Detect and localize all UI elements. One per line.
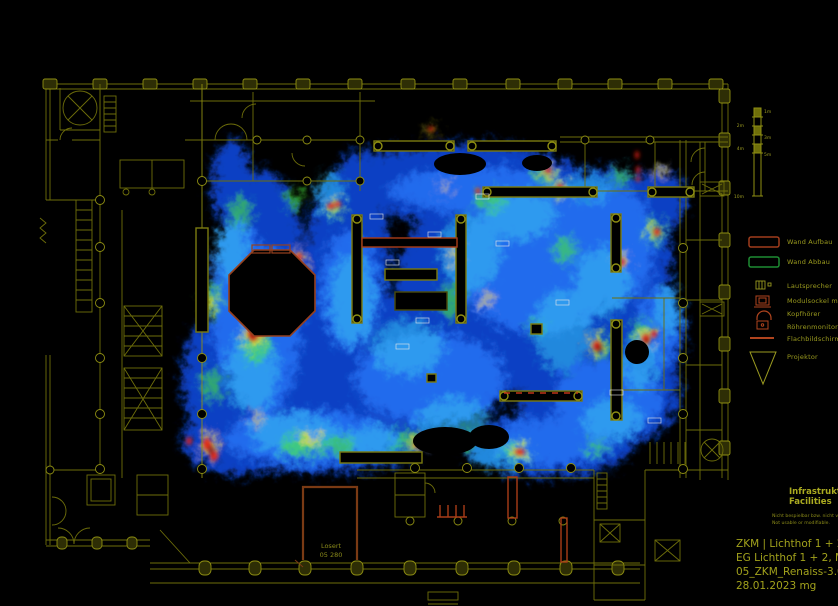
plan-filename: 05_ZKM_Renaiss-3.0_E01 [736, 565, 838, 579]
room-label-line1: Losert [321, 542, 342, 550]
svg-text:4m: 4m [737, 146, 744, 152]
legend-label-roehrenmonitor: Röhrenmonitor mit Sockel [787, 323, 838, 331]
zkm-floorplan-heatmap-view: { "title_block": { "section_de": "Infras… [0, 0, 838, 606]
svg-text:2m: 2m [737, 123, 744, 129]
svg-text:1m: 1m [764, 109, 771, 115]
svg-text:5m: 5m [764, 152, 771, 158]
title-note-de: Nicht bespielbar bzw. nicht veränderbar. [772, 514, 838, 521]
plan-subtitle-scale: EG Lichthof 1 + 2, M 1:250 [736, 551, 838, 565]
title-note-en: Not usable or modifiable. [772, 521, 830, 528]
room-label-line2: 05 280 [320, 551, 343, 559]
legend-label-lautsprecher: Lautsprecher [787, 282, 832, 290]
legend-label-wand-aufbau: Wand Aufbau [787, 238, 833, 246]
svg-text:3m: 3m [764, 135, 771, 141]
plan-title: ZKM | Lichthof 1 + 2 [736, 537, 838, 551]
floorplan-canvas: Losert 05 280 1m 2m 3m 4m 5m 10m [0, 0, 838, 606]
legend-label-projektor: Projektor [787, 353, 818, 361]
section-title-en: Facilities [789, 498, 832, 508]
legend-label-modulsockel: Modulsockel mit Monitor [787, 297, 838, 305]
svg-text:10m: 10m [734, 194, 744, 200]
legend-label-flachbildschirm: Flachbildschirm [787, 335, 838, 343]
legend-label-wand-abbau: Wand Abbau [787, 258, 830, 266]
legend-label-kopfhoerer: Kopfhörer [787, 310, 820, 318]
plan-date-author: 28.01.2023 mg [736, 579, 816, 593]
